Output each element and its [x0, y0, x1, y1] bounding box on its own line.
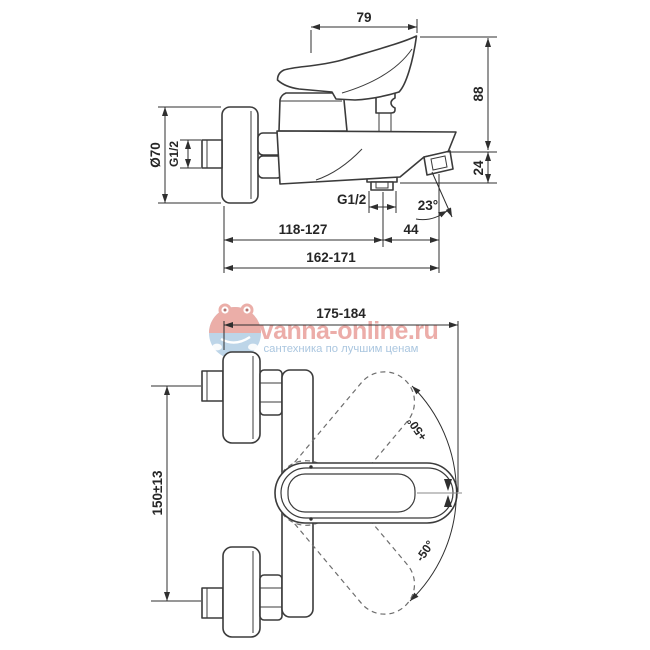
plan-view: 175-184 150±13 +50° -50°: [150, 306, 462, 637]
inlet-nipple-side: [202, 140, 222, 168]
dim-swing-down-label: -50°: [413, 538, 437, 564]
watermark-tagline-text: сантехника по лучшим ценам: [264, 343, 419, 355]
dim-total-depth-label: 162-171: [306, 250, 356, 265]
dim-escutcheon-diameter-label: Ø70: [148, 142, 163, 168]
frog-logo-icon: [209, 304, 261, 360]
side-view: 79 88 24 Ø70 G1/2: [148, 10, 497, 273]
dim-outlet-to-tip-label: 44: [403, 222, 419, 237]
faucet-dimension-drawing: 79 88 24 Ø70 G1/2: [0, 0, 650, 650]
dim-inlet-thread-label: G1/2: [167, 141, 181, 167]
dim-wall-to-outlet-label: 118-127: [279, 222, 328, 237]
technical-drawing-page: 79 88 24 Ø70 G1/2: [0, 0, 650, 650]
dim-overall-width-label: 175-184: [316, 306, 366, 321]
wall-escutcheon-side: [222, 107, 258, 203]
dim-outlet-thread-label: G1/2: [337, 192, 366, 207]
top-inlet-connection: [202, 352, 282, 443]
dim-inlet-centers-label: 150±13: [150, 470, 165, 515]
dim-lever-length-label: 79: [356, 10, 371, 25]
watermark-brand-text: vanna-online.ru: [260, 317, 439, 345]
dim-spout-drop-label: 24: [471, 160, 486, 176]
dim-height-label: 88: [471, 86, 486, 102]
lever-handle-side: [278, 36, 417, 100]
dim-spout-angle-label: 23°: [418, 198, 438, 213]
bottom-inlet-connection: [202, 547, 282, 637]
dim-swing-up-label: +50°: [404, 415, 430, 444]
mixer-body-spout: [277, 131, 456, 184]
